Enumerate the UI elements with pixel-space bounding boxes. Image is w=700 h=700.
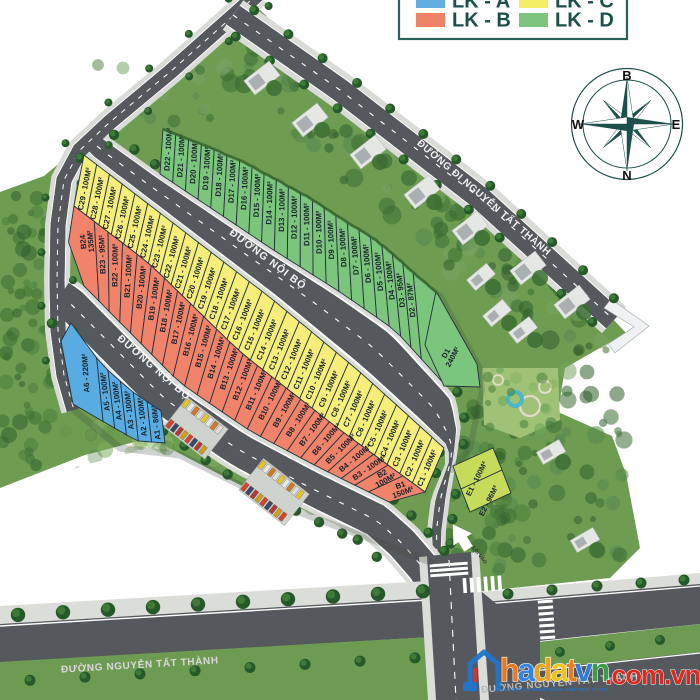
svg-text:B23 - 95M²: B23 - 95M² bbox=[97, 235, 107, 275]
svg-text:W: W bbox=[572, 117, 585, 132]
svg-text:.com.vn: .com.vn bbox=[605, 660, 700, 690]
svg-text:B: B bbox=[622, 68, 631, 83]
svg-text:D12 - 100M²: D12 - 100M² bbox=[290, 195, 299, 239]
svg-text:D14 - 100M²: D14 - 100M² bbox=[264, 181, 274, 225]
svg-text:D8 - 100M²: D8 - 100M² bbox=[338, 228, 349, 268]
svg-text:D9 - 100M²: D9 - 100M² bbox=[326, 220, 336, 260]
svg-text:hadatvn: hadatvn bbox=[500, 652, 609, 688]
svg-text:D11 - 100M²: D11 - 100M² bbox=[302, 203, 311, 246]
svg-text:LK - B: LK - B bbox=[452, 10, 511, 32]
svg-text:D15 - 100M²: D15 - 100M² bbox=[252, 173, 263, 217]
svg-text:N: N bbox=[622, 168, 631, 183]
svg-text:E: E bbox=[672, 117, 681, 132]
svg-text:D10 - 100M²: D10 - 100M² bbox=[314, 210, 324, 254]
svg-text:LK - D: LK - D bbox=[555, 10, 614, 32]
svg-text:D13 - 100M²: D13 - 100M² bbox=[277, 188, 287, 232]
svg-text:B22 - 100M²: B22 - 100M² bbox=[110, 243, 119, 287]
